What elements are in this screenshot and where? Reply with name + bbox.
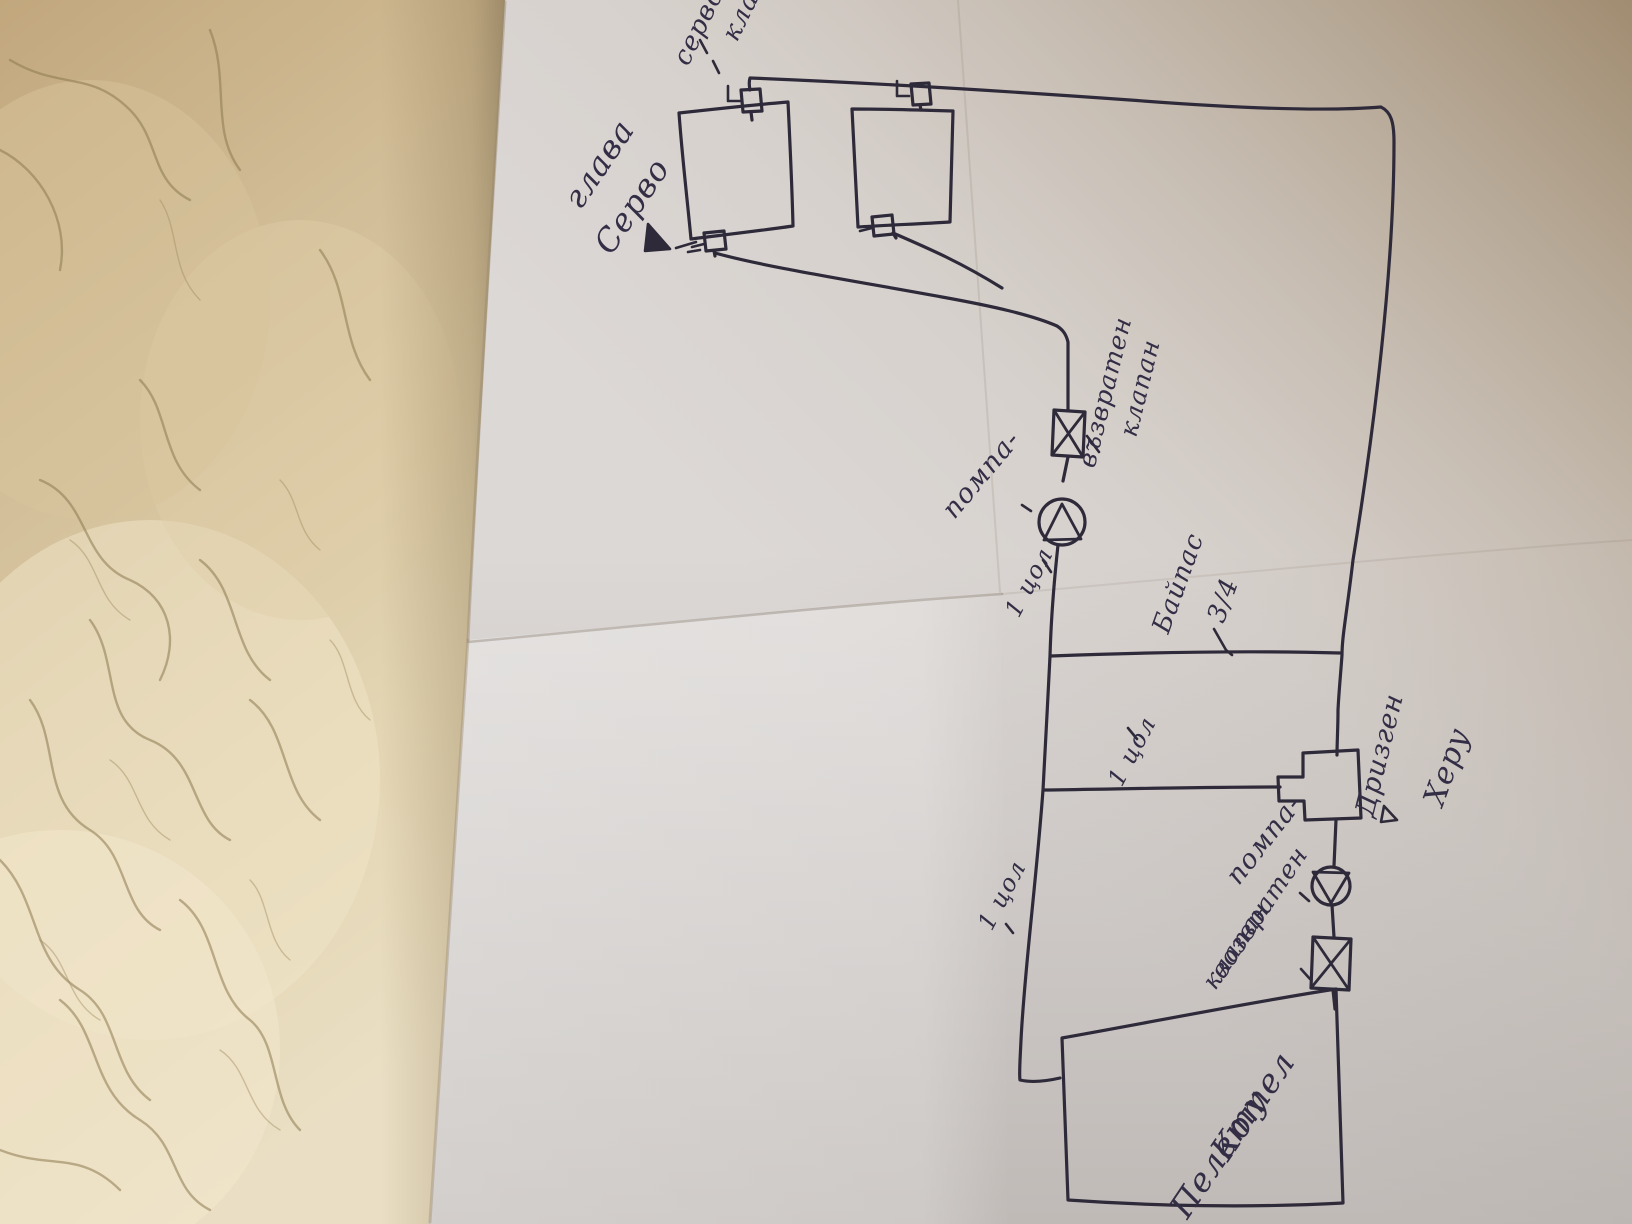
paper-fold-light [430, 592, 1010, 1224]
scene-canvas: серво кла Серво глава възвратен клапан п… [0, 0, 1632, 1224]
photo-of-hand-drawn-diagram: серво кла Серво глава възвратен клапан п… [0, 0, 1632, 1224]
pipe-pump2-to-valve2 [1332, 905, 1334, 937]
pipe-tee-to-pump2 [1334, 820, 1336, 866]
paper-sheet [430, 0, 1632, 1224]
